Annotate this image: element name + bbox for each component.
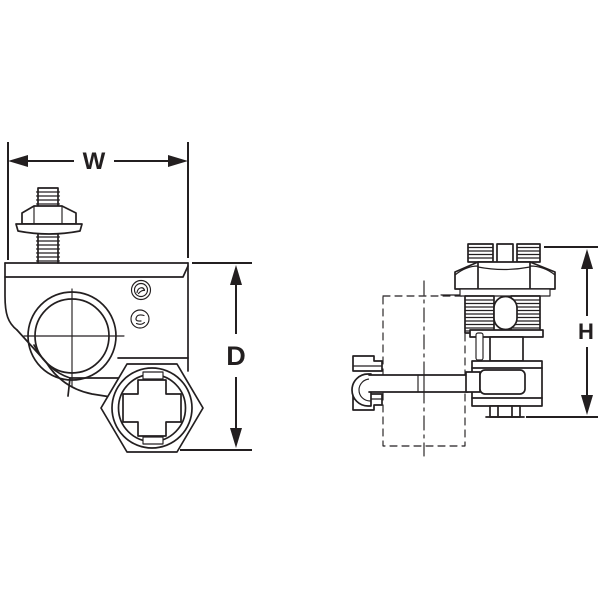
locking-tab-top [143, 372, 163, 379]
technical-drawing: W D H [0, 0, 600, 600]
arrow-down-icon [230, 428, 242, 448]
body-top-edges [5, 263, 188, 277]
bolt-tip-peg [497, 244, 513, 264]
width-dimension: W [8, 142, 188, 260]
mounting-bolt [16, 188, 82, 263]
cert-mark-ring [131, 310, 149, 328]
thread-block-left [468, 244, 493, 262]
arrow-up-icon [581, 249, 593, 269]
body-left-edge-lobe [5, 263, 17, 330]
clamp-front-view [5, 188, 203, 452]
flange-nut [22, 206, 76, 224]
bottom-hex-nut [490, 406, 520, 417]
clamp-bolt [369, 375, 468, 392]
bracket-assembly [466, 333, 542, 417]
split-bolt-connector [441, 244, 555, 337]
arrow-up-icon [230, 265, 242, 285]
depth-dimension-label: D [226, 341, 246, 371]
cert-mark-glyph [137, 288, 145, 294]
arrow-down-icon [581, 395, 593, 415]
arrow-left-icon [8, 155, 28, 167]
clamp-side-view [352, 244, 555, 456]
drawing-canvas: W D H [0, 0, 600, 600]
jaw-plate-top [353, 356, 382, 371]
certification-mark-icon [131, 310, 149, 328]
cert-mark-glyph [136, 315, 145, 324]
bolt-shank-stub [466, 372, 480, 392]
guide-pin [476, 333, 483, 360]
cert-mark-inner-ring [135, 284, 148, 297]
width-dimension-label: W [83, 148, 106, 175]
locking-tab-bottom [143, 437, 163, 444]
conductor-slot [494, 297, 517, 330]
nut-washer [460, 289, 550, 296]
certification-mark-icon [132, 281, 151, 300]
height-dimension-label: H [578, 319, 594, 344]
bolt-saddle [480, 370, 525, 394]
arrow-right-icon [168, 155, 188, 167]
split-bolt-nut [455, 262, 555, 289]
thread-block-right [517, 244, 540, 262]
body-web [490, 337, 523, 361]
nut-flange-skirt [16, 224, 82, 234]
